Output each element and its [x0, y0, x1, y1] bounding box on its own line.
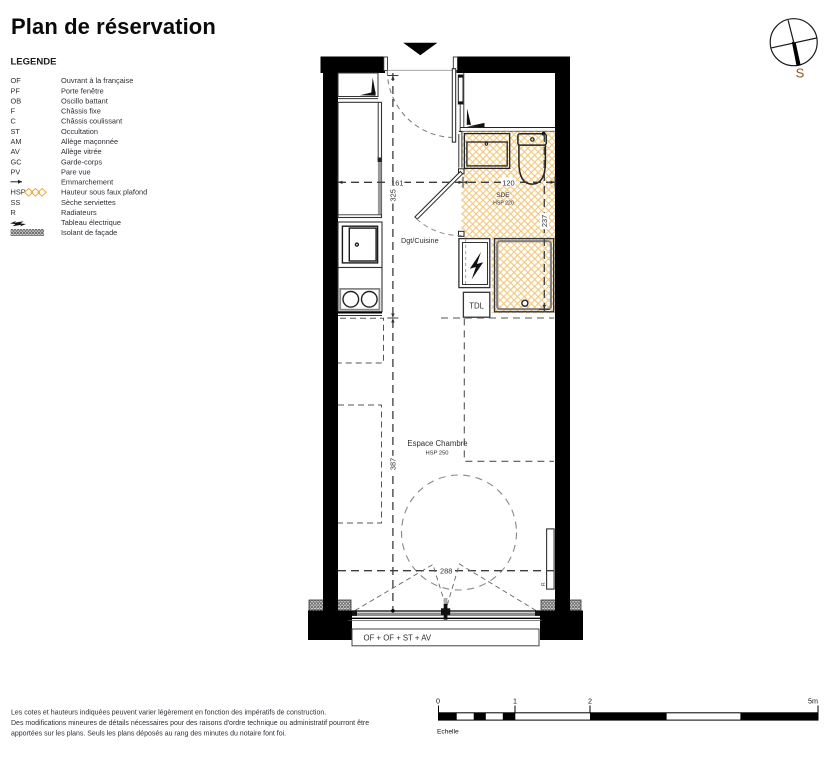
svg-text:120: 120 — [502, 178, 514, 187]
svg-text:Châssis coulissant: Châssis coulissant — [61, 117, 122, 126]
svg-text:Emmarchement: Emmarchement — [61, 178, 113, 187]
svg-text:Châssis fixe: Châssis fixe — [61, 107, 101, 116]
svg-text:GC: GC — [11, 157, 23, 166]
svg-text:Plan de réservation: Plan de réservation — [11, 14, 216, 39]
svg-text:apportées sur les plans. Seuls: apportées sur les plans. Seuls les plans… — [11, 731, 286, 738]
svg-text:Sèche serviettes: Sèche serviettes — [61, 198, 116, 207]
svg-text:Les cotes et hauteurs indiquée: Les cotes et hauteurs indiquées peuvent … — [11, 710, 326, 717]
svg-text:ST: ST — [11, 127, 21, 136]
svg-text:SS: SS — [11, 198, 21, 207]
svg-text:S: S — [796, 66, 805, 81]
svg-text:F: F — [11, 107, 16, 116]
svg-text:237: 237 — [540, 215, 549, 227]
svg-text:HSP 220: HSP 220 — [493, 201, 514, 207]
svg-text:C: C — [11, 117, 17, 126]
svg-text:PF: PF — [11, 86, 21, 95]
svg-text:SDE: SDE — [496, 192, 509, 199]
svg-text:Allège maçonnée: Allège maçonnée — [61, 137, 118, 146]
svg-text:Occultation: Occultation — [61, 127, 98, 136]
svg-text:LEGENDE: LEGENDE — [11, 57, 57, 68]
svg-text:HSP: HSP — [11, 188, 26, 197]
svg-text:Des modifications mineures de: Des modifications mineures de détails né… — [11, 720, 369, 727]
svg-text:325: 325 — [389, 189, 398, 201]
svg-text:Isolant de façade: Isolant de façade — [61, 228, 117, 237]
svg-text:Echelle: Echelle — [437, 729, 459, 736]
svg-text:1: 1 — [513, 697, 517, 706]
svg-text:Allège vitrée: Allège vitrée — [61, 147, 102, 156]
svg-text:Radiateurs: Radiateurs — [61, 208, 97, 217]
svg-text:2: 2 — [588, 697, 592, 706]
svg-text:Pare vue: Pare vue — [61, 167, 91, 176]
svg-text:R: R — [11, 208, 16, 217]
svg-text:Oscillo battant: Oscillo battant — [61, 97, 108, 106]
svg-text:5m: 5m — [808, 697, 818, 706]
svg-text:0: 0 — [436, 697, 440, 706]
svg-text:Ouvrant à la française: Ouvrant à la française — [61, 76, 133, 85]
svg-text:HSP 250: HSP 250 — [425, 450, 448, 456]
svg-text:AM: AM — [11, 137, 22, 146]
svg-text:Garde-corps: Garde-corps — [61, 157, 102, 166]
svg-text:Porte fenêtre: Porte fenêtre — [61, 86, 104, 95]
svg-text:PV: PV — [11, 167, 21, 176]
svg-text:R: R — [541, 582, 547, 586]
svg-text:387: 387 — [389, 458, 398, 470]
svg-text:Tableau électrique: Tableau électrique — [61, 218, 121, 227]
svg-text:OF + OF + ST + AV: OF + OF + ST + AV — [364, 634, 432, 643]
svg-text:Hauteur sous faux plafond: Hauteur sous faux plafond — [61, 188, 147, 197]
svg-text:OF: OF — [11, 76, 22, 85]
svg-text:AV: AV — [11, 147, 20, 156]
svg-text:Espace Chambre: Espace Chambre — [407, 439, 467, 448]
svg-text:OB: OB — [11, 97, 22, 106]
svg-text:TDL: TDL — [469, 301, 484, 310]
svg-text:288: 288 — [440, 567, 452, 576]
svg-text:Dgt/Cuisine: Dgt/Cuisine — [401, 236, 439, 245]
